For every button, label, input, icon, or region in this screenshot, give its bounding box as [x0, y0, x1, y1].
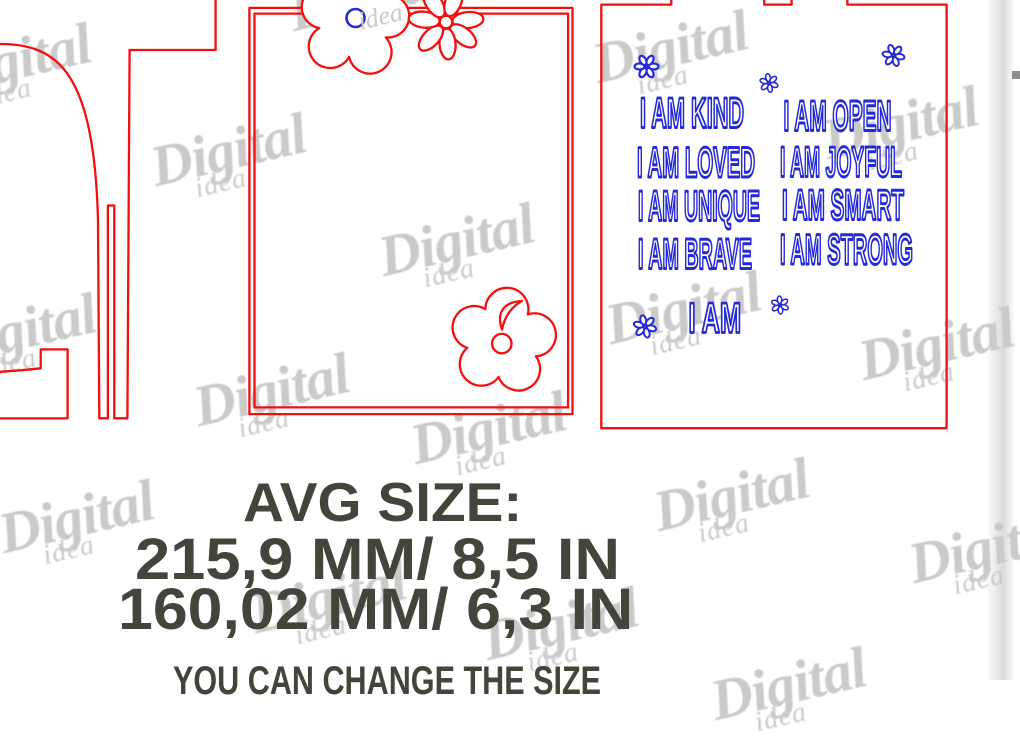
svg-text:I AM SMART: I AM SMART — [782, 181, 904, 229]
svg-text:I AM JOYFUL: I AM JOYFUL — [780, 139, 902, 187]
svg-text:I AM OPEN: I AM OPEN — [784, 92, 892, 140]
svg-text:I AM LOVED: I AM LOVED — [637, 140, 755, 187]
svg-text:I AM UNIQUE: I AM UNIQUE — [638, 183, 760, 231]
svg-text:I AM BRAVE: I AM BRAVE — [638, 231, 752, 279]
svg-text:I AM STRONG: I AM STRONG — [780, 227, 913, 274]
svg-text:I AM KIND: I AM KIND — [640, 90, 744, 138]
svg-text:I AM: I AM — [689, 295, 742, 343]
